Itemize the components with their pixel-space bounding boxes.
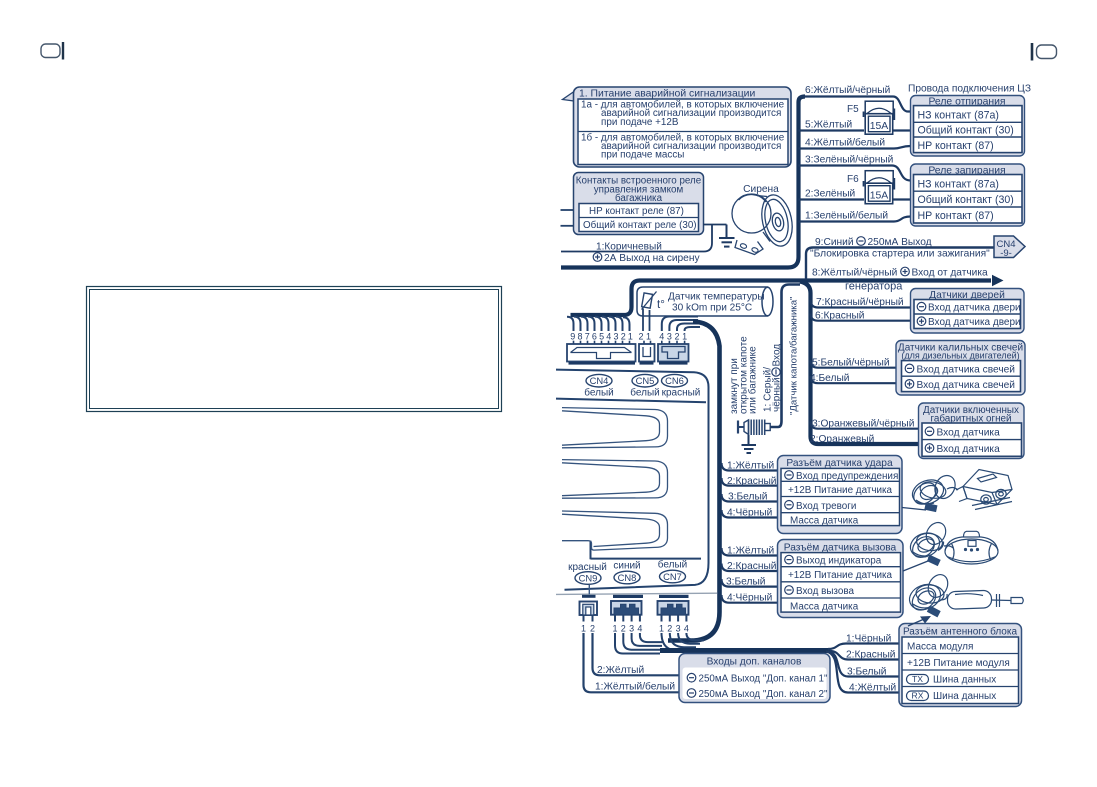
svg-text:2:Красный: 2:Красный: [727, 561, 777, 572]
svg-text:1: 1: [646, 332, 651, 342]
svg-text:НР контакт (87): НР контакт (87): [918, 140, 994, 152]
svg-text:1: 1: [659, 624, 664, 634]
svg-text:+12В Питание датчика: +12В Питание датчика: [788, 570, 893, 581]
svg-text:8:Жёлтый/чёрный: 8:Жёлтый/чёрный: [812, 268, 897, 279]
svg-text:CN7: CN7: [663, 571, 682, 582]
svg-text:Общий контакт (30): Общий контакт (30): [918, 124, 1014, 136]
svg-text:2: 2: [621, 332, 626, 342]
svg-text:Вход тревоги: Вход тревоги: [796, 501, 856, 512]
svg-text:1:Зелёный/белый: 1:Зелёный/белый: [805, 210, 888, 222]
svg-text:1:Жёлтый/белый: 1:Жёлтый/белый: [595, 681, 675, 693]
svg-text:6:Жёлтый/чёрный: 6:Жёлтый/чёрный: [805, 85, 890, 96]
svg-text:7: 7: [585, 332, 590, 342]
svg-text:белый: белый: [630, 387, 659, 399]
svg-text:НР контакт реле (87): НР контакт реле (87): [589, 206, 684, 217]
svg-text:1: 1: [682, 332, 687, 342]
svg-text:4:Жёлтый/белый: 4:Жёлтый/белый: [805, 137, 885, 149]
svg-text:2: 2: [590, 624, 595, 634]
svg-text:3: 3: [667, 332, 672, 342]
svg-text:Шина данных: Шина данных: [933, 675, 996, 686]
svg-text:250мА Выход "Доп. канал 1": 250мА Выход "Доп. канал 1": [699, 674, 828, 685]
svg-text:8: 8: [577, 332, 582, 342]
svg-text:Вход предупреждения: Вход предупреждения: [796, 471, 898, 482]
svg-text:красный: красный: [662, 388, 701, 399]
svg-text:Сирена: Сирена: [743, 184, 779, 195]
svg-text:Масса датчика: Масса датчика: [790, 516, 859, 527]
svg-text:3: 3: [613, 332, 618, 342]
svg-text:5:Жёлтый: 5:Жёлтый: [805, 120, 852, 131]
svg-text:F5: F5: [847, 104, 859, 115]
svg-text:Входы доп. каналов: Входы доп. каналов: [707, 657, 802, 668]
svg-text:при подаче массы: при подаче массы: [601, 150, 684, 161]
svg-text:Масса модуля: Масса модуля: [907, 642, 973, 653]
svg-text:2: 2: [621, 624, 626, 634]
svg-text:2:Красный: 2:Красный: [727, 476, 777, 487]
svg-text:багажника: багажника: [615, 193, 663, 204]
svg-text:Общий контакт реле (30): Общий контакт реле (30): [583, 220, 697, 231]
svg-text:"Блокировка стартера или зажиг: "Блокировка стартера или зажигания": [810, 249, 990, 260]
svg-text:+12В Питание датчика: +12В Питание датчика: [788, 485, 893, 496]
svg-text:+12В Питание модуля: +12В Питание модуля: [907, 658, 1010, 669]
svg-text:6: 6: [592, 332, 597, 342]
svg-text:2: 2: [638, 332, 643, 342]
svg-text:при подаче +12В: при подаче +12В: [601, 117, 679, 128]
svg-text:Вход вызова: Вход вызова: [796, 586, 854, 597]
svg-text:3:Белый: 3:Белый: [728, 492, 767, 503]
svg-text:НР контакт (87): НР контакт (87): [918, 210, 994, 222]
svg-text:1: 1: [628, 332, 633, 342]
svg-text:2:Зелёный: 2:Зелёный: [805, 189, 855, 200]
svg-text:Шина данных: Шина данных: [933, 691, 996, 702]
svg-text:1: 1: [612, 624, 617, 634]
svg-text:-9-: -9-: [1000, 248, 1012, 259]
svg-text:белый: белый: [658, 559, 687, 571]
svg-text:3: 3: [676, 624, 681, 634]
svg-text:15A: 15A: [870, 121, 889, 132]
svg-text:3:Белый: 3:Белый: [847, 667, 886, 678]
svg-text:НЗ контакт (87а): НЗ контакт (87а): [918, 110, 999, 122]
svg-text:белый: белый: [584, 387, 613, 399]
svg-text:3: 3: [629, 624, 634, 634]
svg-text:4: 4: [659, 332, 664, 342]
svg-text:Разъём антенного блока: Разъём антенного блока: [903, 626, 1017, 638]
svg-text:Вход датчика: Вход датчика: [937, 444, 1001, 455]
svg-text:4: 4: [684, 624, 689, 634]
svg-text:9: 9: [570, 332, 575, 342]
svg-text:250мА Выход "Доп. канал 2": 250мА Выход "Доп. канал 2": [699, 689, 828, 700]
svg-text:CN4: CN4: [590, 375, 609, 386]
svg-text:2:Красный: 2:Красный: [846, 650, 896, 661]
svg-text:Общий контакт (30): Общий контакт (30): [918, 194, 1014, 206]
svg-text:2:Жёлтый: 2:Жёлтый: [597, 665, 644, 676]
svg-text:9:Синий: 9:Синий: [815, 237, 854, 248]
svg-text:2А Выход на сирену: 2А Выход на сирену: [604, 253, 700, 264]
svg-text:4: 4: [637, 624, 642, 634]
svg-text:7:Красный/чёрный: 7:Красный/чёрный: [816, 297, 904, 308]
svg-text:1. Питание аварийной сигнализа: 1. Питание аварийной сигнализации: [579, 89, 755, 100]
svg-text:2: 2: [674, 332, 679, 342]
svg-text:1:Жёлтый: 1:Жёлтый: [727, 546, 774, 557]
svg-text:4:Жёлтый: 4:Жёлтый: [849, 683, 896, 694]
svg-text:CN6: CN6: [665, 375, 684, 386]
svg-text:4:Чёрный: 4:Чёрный: [727, 508, 772, 519]
svg-text:CN5: CN5: [636, 375, 655, 386]
svg-text:1:Жёлтый: 1:Жёлтый: [727, 461, 774, 472]
svg-text:Вход датчика: Вход датчика: [937, 427, 1001, 438]
svg-text:30 kOm при 25°C: 30 kOm при 25°C: [672, 303, 752, 314]
svg-text:генератора: генератора: [845, 281, 903, 293]
svg-text:CN9: CN9: [579, 573, 598, 584]
svg-text:CN8: CN8: [618, 572, 637, 583]
svg-text:"Датчик капота/багажника": "Датчик капота/багажника": [789, 297, 800, 415]
svg-text:RX: RX: [912, 691, 924, 701]
svg-text:TX: TX: [912, 674, 923, 684]
svg-text:1: 1: [581, 624, 586, 634]
svg-text:или багажнике: или багажнике: [747, 346, 759, 414]
svg-text:Вход датчика свечей: Вход датчика свечей: [917, 380, 1016, 391]
svg-text:2: 2: [667, 624, 672, 634]
svg-text:5: 5: [599, 332, 604, 342]
svg-text:3:Зелёный/чёрный: 3:Зелёный/чёрный: [805, 155, 893, 166]
svg-text:t°: t°: [657, 299, 665, 311]
svg-text:Датчик температуры: Датчик температуры: [668, 292, 765, 303]
svg-text:F6: F6: [847, 174, 859, 185]
svg-text:Выход индикатора: Выход индикатора: [796, 556, 882, 567]
svg-text:Вход датчика двери: Вход датчика двери: [928, 303, 1021, 314]
svg-text:3:Белый: 3:Белый: [726, 577, 765, 588]
svg-text:2:Оранжевый: 2:Оранжевый: [810, 434, 874, 445]
svg-text:Вход датчика двери: Вход датчика двери: [928, 317, 1021, 328]
svg-text:синий: синий: [613, 561, 640, 572]
svg-text:(для дизельных двигателей): (для дизельных двигателей): [901, 351, 1019, 361]
svg-text:1:Чёрный: 1:Чёрный: [846, 634, 891, 645]
svg-text:Разъём датчика удара: Разъём датчика удара: [786, 458, 893, 469]
svg-text:НЗ контакт (87а): НЗ контакт (87а): [918, 178, 999, 190]
svg-text:15A: 15A: [870, 191, 889, 202]
svg-text:4:Чёрный: 4:Чёрный: [727, 593, 772, 604]
svg-text:250мА Выход: 250мА Выход: [868, 237, 932, 248]
svg-text:Вход датчика свечей: Вход датчика свечей: [917, 364, 1016, 375]
svg-text:Провода подключения ЦЗ: Провода подключения ЦЗ: [908, 84, 1031, 95]
svg-text:4: 4: [606, 332, 611, 342]
svg-text:Вход от датчика: Вход от датчика: [912, 268, 989, 279]
svg-text:Масса датчика: Масса датчика: [790, 602, 859, 613]
